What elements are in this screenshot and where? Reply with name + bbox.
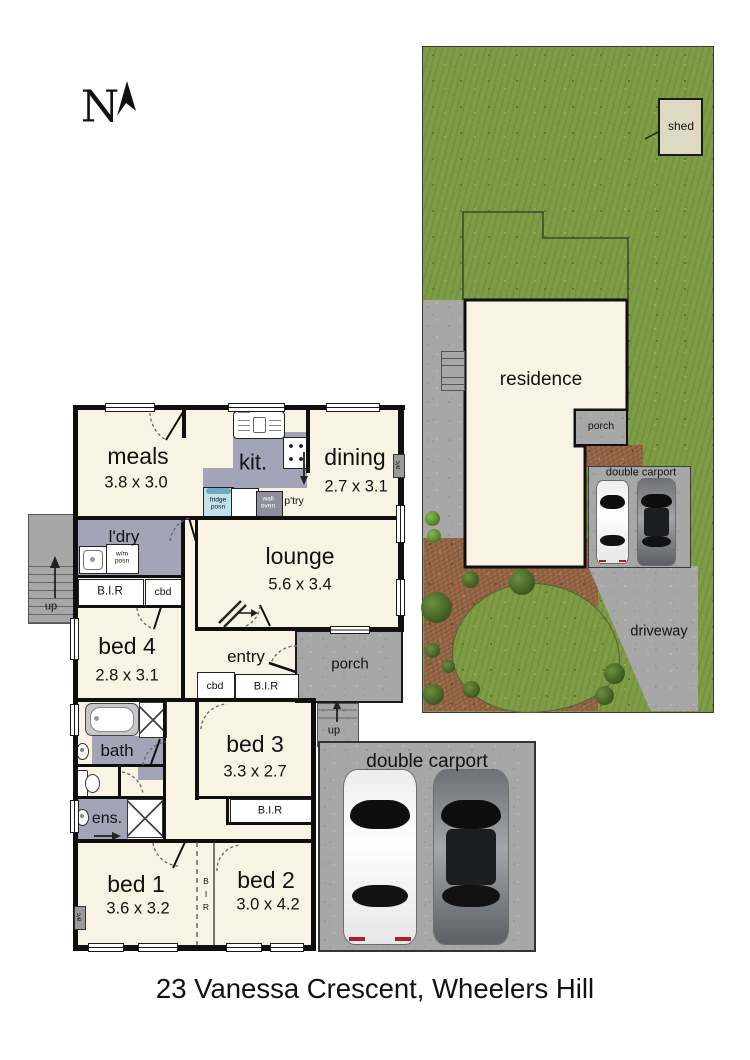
kitchen-bench xyxy=(231,488,259,518)
bir-bed3-label: B.I.R xyxy=(258,805,282,818)
kitchen-sink xyxy=(233,411,285,439)
site-car-grey xyxy=(638,479,675,565)
up-left-label: up xyxy=(45,601,57,614)
dining-label: dining xyxy=(324,444,385,470)
shed-label: shed xyxy=(668,120,694,134)
bir-laundry-label: B.I.R xyxy=(97,585,123,598)
ac-bed1-label: a/c xyxy=(75,913,82,922)
laundry-label: l'dry xyxy=(109,527,140,547)
carport-label: double carport xyxy=(366,751,487,773)
site-steps xyxy=(441,351,465,391)
bed2-dims: 3.0 x 4.2 xyxy=(236,896,299,915)
address-title: 23 Vanessa Crescent, Wheelers Hill xyxy=(156,973,594,1005)
porch-label: porch xyxy=(331,655,369,672)
meals-label: meals xyxy=(107,443,168,469)
north-label: N xyxy=(81,83,120,134)
site-carport-label: double carport xyxy=(606,467,676,480)
up-porch-label: up xyxy=(328,725,340,738)
pantry-label: p'try xyxy=(284,495,304,507)
laundry-trough xyxy=(79,546,107,574)
bir-vertical-label: B I R xyxy=(202,875,211,913)
cbd-entry-label: cbd xyxy=(207,680,224,692)
bed4-dims: 2.8 x 3.1 xyxy=(95,667,158,686)
bathtub xyxy=(85,703,139,736)
shower-ensuite xyxy=(127,799,163,838)
bed3-dims: 3.3 x 2.7 xyxy=(223,763,286,782)
ac-dining-label: a/c xyxy=(394,461,401,470)
residence-label: residence xyxy=(500,369,582,391)
carport-car-grey xyxy=(434,770,508,944)
ensuite-label: ens. xyxy=(92,810,122,828)
wall-oven-label: wall oven xyxy=(257,496,279,511)
kitchen-label: kit. xyxy=(239,449,267,474)
site-porch-label: porch xyxy=(588,420,614,432)
lounge-label: lounge xyxy=(265,543,334,569)
cbd-laundry-label: cbd xyxy=(155,586,172,598)
wm-label: w/m posn xyxy=(110,551,134,566)
bed1-label: bed 1 xyxy=(107,871,165,897)
bed1-dims: 3.6 x 3.2 xyxy=(106,900,169,919)
entry-label: entry xyxy=(227,647,265,667)
floorplan-page: N shed residence porch double carport dr… xyxy=(0,0,750,1060)
lounge-dims: 5.6 x 3.4 xyxy=(268,576,331,595)
dining-dims: 2.7 x 3.1 xyxy=(324,478,387,497)
bath-label: bath xyxy=(100,741,133,761)
bed2-label: bed 2 xyxy=(237,867,295,893)
driveway-label: driveway xyxy=(630,624,687,641)
toilet xyxy=(77,770,98,797)
fridge-label: fridge posn xyxy=(205,497,231,512)
site-car-white xyxy=(597,481,628,563)
bed4-label: bed 4 xyxy=(98,633,156,659)
carport-car-white xyxy=(344,770,416,944)
bir-entry-label: B.I.R xyxy=(254,681,278,694)
bed3-label: bed 3 xyxy=(226,731,284,757)
meals-dims: 3.8 x 3.0 xyxy=(104,474,167,493)
